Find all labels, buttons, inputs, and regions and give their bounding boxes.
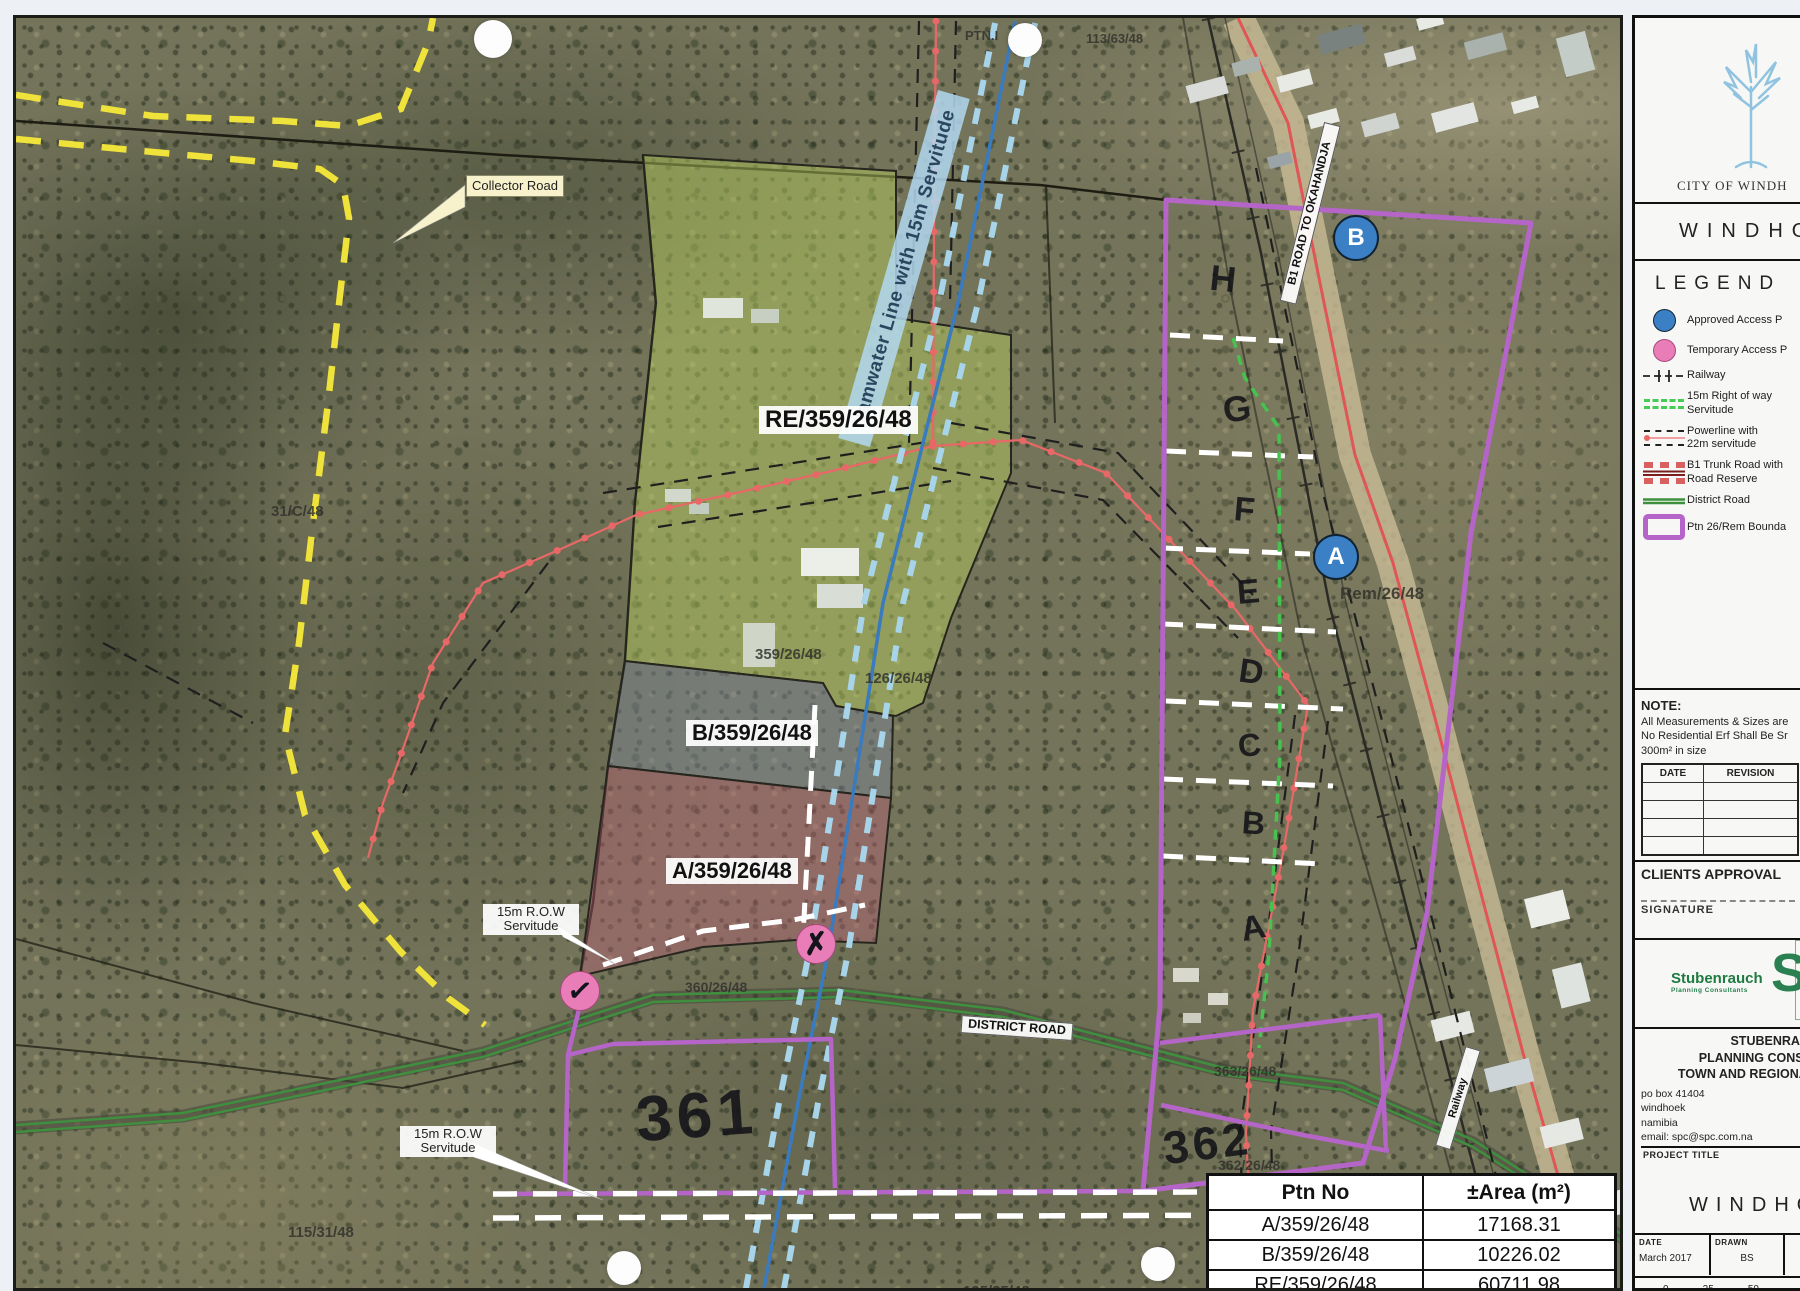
project-title-section: WINDHOE <box>1635 1176 1800 1235</box>
parcel-363-label: 363/26/48 <box>1214 1063 1276 1079</box>
handwritten-361: 361 <box>634 1074 761 1156</box>
meta-drawn-label: DRAWN <box>1715 1238 1779 1247</box>
parcel-126-label: 126/26/48 <box>865 670 932 687</box>
parcel-360-label: 360/26/48 <box>685 979 747 995</box>
parcel-115-label: 115/31/48 <box>288 1224 354 1241</box>
stubenrauch-logo-name: Stubenrauch <box>1671 970 1763 987</box>
note-title: NOTE: <box>1641 698 1800 713</box>
parcel-a-label: A/359/26/48 <box>666 858 798 884</box>
approved-access-point-a: A <box>1313 534 1359 580</box>
parcel-b-label: B/359/26/48 <box>686 720 818 746</box>
legend-label: District Road <box>1687 494 1750 508</box>
legend-item-temporary-access: Temporary Access P <box>1641 339 1800 362</box>
scanned-map-sheet: PTN.I 113/63/48 Collector Road Namwater … <box>0 0 1800 1291</box>
address-line-4: email: spc@spc.com.na <box>1641 1130 1800 1144</box>
legend-label: Approved Access P <box>1687 314 1782 328</box>
legend-item-row-servitude: 15m Right of wayServitude <box>1641 390 1800 418</box>
legend-item-ptn-boundary: Ptn 26/Rem Bounda <box>1641 514 1800 540</box>
b1-trunk-road-icon <box>1641 462 1687 484</box>
table-row: RE/359/26/48 60711.98 <box>1208 1270 1616 1291</box>
district-road-icon <box>1641 497 1687 505</box>
punch-hole-bottom-left <box>607 1251 641 1285</box>
meta-drawn-value: BS <box>1715 1253 1779 1264</box>
municipality-section: WINDHO <box>1635 204 1800 261</box>
access-b-letter: B <box>1347 224 1364 252</box>
sp-logo-mark: SP <box>1771 946 1800 1000</box>
legend-label: 15m Right of wayServitude <box>1687 390 1772 418</box>
legend-item-railway: Railway <box>1641 369 1800 383</box>
row-servitude-label-1: 15m R.O.W Servitude <box>483 904 579 935</box>
legend-item-district-road: District Road <box>1641 494 1800 508</box>
legend-title: LEGEND <box>1655 273 1800 295</box>
parcel-re-fill <box>625 155 1011 716</box>
revision-row <box>1642 836 1798 855</box>
area-table-header-ptn: Ptn No <box>1208 1175 1424 1211</box>
meta-date-value: March 2017 <box>1639 1253 1705 1264</box>
firm-details-section: STUBENRAUCH PLANNING CONSULT TOWN AND RE… <box>1635 1029 1800 1176</box>
legend-label: Railway <box>1687 369 1726 383</box>
scale-tick-0: 0 <box>1663 1284 1669 1288</box>
parcel-re-label: RE/359/26/48 <box>759 406 918 434</box>
firm-name-line-3: TOWN AND REGIONAL P <box>1641 1066 1800 1083</box>
cross-mark-icon: ✗ <box>802 925 831 962</box>
project-title-label: PROJECT TITLE <box>1641 1148 1800 1160</box>
municipality-name: WINDHO <box>1679 220 1800 243</box>
area-table-header-row: Ptn No ±Area (m²) <box>1208 1175 1616 1211</box>
revision-row <box>1642 818 1798 836</box>
note-line-2: No Residential Erf Shall Be Sr <box>1641 729 1800 743</box>
area-cell-re: 60711.98 <box>1423 1270 1616 1291</box>
access-a-letter: A <box>1327 543 1344 571</box>
firm-name-line-1: STUBENRAUCH <box>1641 1033 1800 1050</box>
handwritten-letter-g: G <box>1220 386 1254 431</box>
parcel-fills <box>580 155 1011 976</box>
approved-access-point-b: B <box>1333 215 1379 261</box>
area-cell-a: 17168.31 <box>1423 1210 1616 1240</box>
handwritten-letter-e: E <box>1235 572 1261 613</box>
scale-section: 0 25 50 Meters 1:5 000 <box>1635 1278 1800 1288</box>
note-line-3: 300m² in size <box>1641 744 1800 758</box>
title-block-panel: CITY OF WINDH WINDHO LEGEND Approved Acc… <box>1632 15 1800 1291</box>
punch-hole-bottom-right <box>1141 1247 1175 1281</box>
railway-icon <box>1641 370 1687 382</box>
clients-approval-section: CLIENTS APPROVAL SIGNATURE <box>1635 862 1800 941</box>
check-mark-icon: ✓ <box>565 972 595 1010</box>
clients-approval-text: CLIENTS APPROVAL <box>1641 866 1800 882</box>
revision-table: DATE REVISION <box>1641 763 1799 856</box>
meta-section: DATE March 2017 DRAWN BS <box>1635 1235 1800 1278</box>
revision-table-revision-header: REVISION <box>1704 764 1799 783</box>
revision-table-date-header: DATE <box>1642 764 1704 783</box>
parcel-113-63-48-label: 113/63/48 <box>1086 31 1143 46</box>
powerline-icon <box>1641 428 1687 448</box>
scale-tick-25: 25 <box>1703 1284 1714 1288</box>
row-servitude-icon <box>1641 397 1687 411</box>
scale-tick-50: 50 <box>1748 1284 1759 1288</box>
legend-item-b1-trunk-road: B1 Trunk Road withRoad Reserve <box>1641 459 1800 487</box>
city-of-windhoek-logo-icon <box>1696 32 1800 172</box>
handwritten-letter-h: H <box>1208 257 1238 301</box>
legend-item-powerline: Powerline with22m servitude <box>1641 425 1800 453</box>
rem-26-48-label: Rem/26/48 <box>1340 584 1424 604</box>
handwritten-letter-c: C <box>1236 726 1263 765</box>
handwritten-letter-f: F <box>1232 490 1256 531</box>
legend-label: Ptn 26/Rem Bounda <box>1687 521 1786 535</box>
parcel-31c-label: 31/C/48 <box>271 503 324 520</box>
area-cell-b: 10226.02 <box>1423 1240 1616 1270</box>
ptn-boundary-icon <box>1643 514 1685 540</box>
ptn-cell-b: B/359/26/48 <box>1208 1240 1424 1270</box>
revision-row <box>1642 782 1798 800</box>
note-section: NOTE: All Measurements & Sizes are No Re… <box>1635 690 1800 862</box>
city-logo-section: CITY OF WINDH <box>1635 18 1800 204</box>
firm-name-line-2: PLANNING CONSULT <box>1641 1050 1800 1067</box>
consultant-logo-section: Stubenrauch Planning Consultants SP <box>1635 940 1800 1028</box>
signature-label: SIGNATURE <box>1641 904 1800 916</box>
collector-road-label: Collector Road <box>466 175 564 197</box>
legend-label: Powerline with22m servitude <box>1687 425 1758 453</box>
city-of-windhoek-text: CITY OF WINDH <box>1677 178 1788 194</box>
address-line-2: windhoek <box>1641 1101 1800 1115</box>
project-title: WINDHOE <box>1689 1194 1800 1217</box>
table-row: A/359/26/48 17168.31 <box>1208 1210 1616 1240</box>
stubenrauch-logo-tagline: Planning Consultants <box>1671 987 1763 994</box>
map-area: PTN.I 113/63/48 Collector Road Namwater … <box>13 15 1623 1291</box>
punch-hole-top-right <box>1008 23 1042 57</box>
row-servitude-label-2: 15m R.O.W Servitude <box>400 1126 496 1157</box>
approved-access-icon <box>1653 309 1676 332</box>
temporary-access-icon <box>1653 339 1676 362</box>
ptn-label: PTN.I <box>965 28 998 43</box>
address-line-3: namibia <box>1641 1116 1800 1130</box>
note-line-1: All Measurements & Sizes are <box>1641 715 1800 729</box>
signature-line <box>1641 900 1795 902</box>
area-table: Ptn No ±Area (m²) A/359/26/48 17168.31 B… <box>1206 1173 1617 1291</box>
legend-label: Temporary Access P <box>1687 344 1787 358</box>
table-row: B/359/26/48 10226.02 <box>1208 1240 1616 1270</box>
legend-item-approved-access: Approved Access P <box>1641 309 1800 332</box>
ptn-cell-re: RE/359/26/48 <box>1208 1270 1424 1291</box>
revision-row <box>1642 800 1798 818</box>
punch-hole-top-left <box>474 20 512 58</box>
ptn-cell-a: A/359/26/48 <box>1208 1210 1424 1240</box>
parcel-359-label: 359/26/48 <box>755 646 822 663</box>
meta-date-label: DATE <box>1639 1238 1705 1247</box>
legend-section: LEGEND Approved Access P Temporary Acces… <box>1635 261 1800 689</box>
collector-road-lines <box>16 18 485 1025</box>
parcel-125-label: 125/25/48 <box>963 1283 1030 1291</box>
legend-label: B1 Trunk Road withRoad Reserve <box>1687 459 1783 487</box>
handwritten-letter-b: B <box>1241 804 1267 843</box>
address-line-1: po box 41404 <box>1641 1087 1800 1101</box>
handwritten-362: 362 <box>1160 1111 1255 1175</box>
area-table-header-area: ±Area (m²) <box>1423 1175 1616 1211</box>
